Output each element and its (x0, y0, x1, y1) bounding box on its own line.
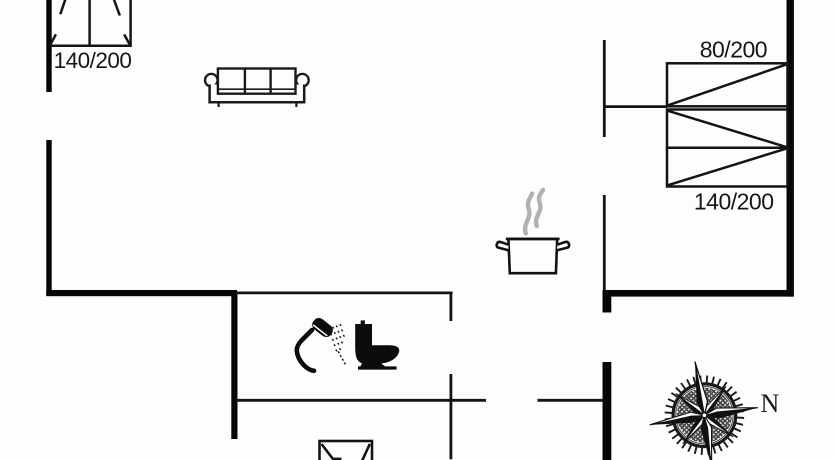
svg-text:140/200: 140/200 (54, 48, 132, 73)
svg-text:140/200: 140/200 (694, 189, 774, 215)
svg-text:N: N (761, 389, 780, 418)
svg-text:80/200: 80/200 (700, 37, 767, 63)
